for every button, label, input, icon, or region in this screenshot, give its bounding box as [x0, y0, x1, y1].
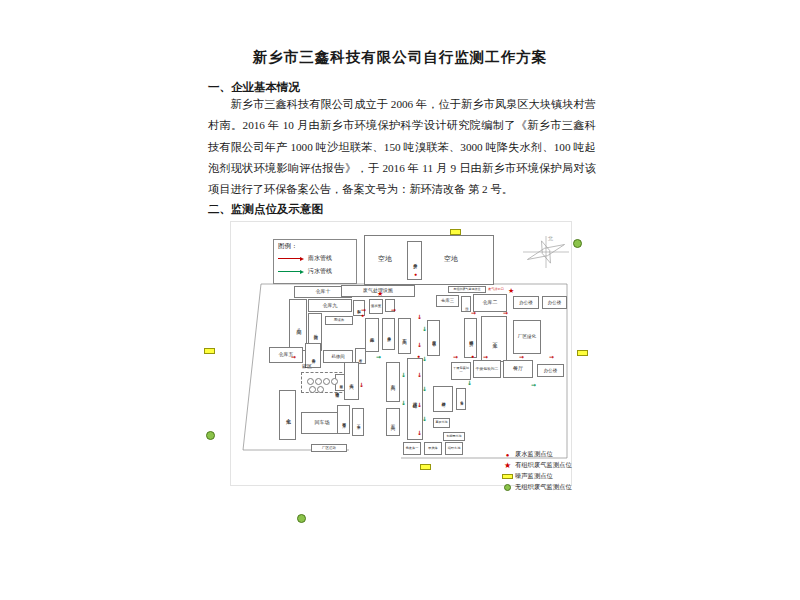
fugitive-gas-point-icon: [504, 484, 511, 491]
map-building: 空地: [435, 252, 467, 266]
section1-paragraph: 新乡市三鑫科技有限公司成立于 2006 年，位于新乡市凤泉区大块镇块村营村南。2…: [208, 94, 596, 200]
map-building: 办公楼: [542, 296, 567, 309]
map-building: 周转库: [325, 316, 353, 325]
map-building: 仓库九: [308, 299, 352, 312]
map-building: 值班室: [369, 299, 383, 314]
rainwater-pipe-arrow: ↓: [417, 430, 422, 436]
map-building: 仓库十一: [352, 408, 364, 436]
map-building: 罐区: [297, 362, 317, 371]
monitoring-legend-item-fugitive-gas: 无组织废气监测点位: [500, 482, 630, 493]
noise-monitoring-point: [420, 464, 431, 470]
monitoring-legend-item-noise: 噪声监测点位: [500, 471, 630, 482]
wastewater-point-icon: ●: [506, 452, 510, 458]
legend-item-sewage: 污水管线: [278, 265, 352, 278]
map-building: 备件库: [456, 388, 466, 410]
monitoring-legend-item-wastewater: ● 废水监测点位: [500, 449, 630, 460]
sewage-pipe-arrow: ↓: [422, 356, 427, 362]
rainwater-pipe-arrow: ↓: [417, 314, 422, 320]
map-building: 危废库二: [382, 318, 395, 350]
map-building: 干燥包装间一: [451, 362, 471, 380]
map-building: 仓库四: [365, 318, 379, 352]
storage-tank-icon: [315, 378, 322, 385]
map-building: 有组织废气监测点位: [448, 286, 486, 293]
sewage-pipe-arrow: →: [531, 382, 536, 388]
fugitive-gas-monitoring-point: [206, 431, 215, 440]
rainwater-pipe-arrow: →: [471, 310, 476, 316]
wastewater-point-icon: ●: [361, 313, 364, 318]
map-building: 五车间: [398, 318, 411, 354]
organized-gas-point-icon: ★: [377, 290, 383, 297]
sewage-pipe-arrow: →: [376, 354, 381, 360]
organized-gas-point-icon: ★: [508, 287, 514, 294]
fugitive-gas-monitoring-point: [573, 239, 582, 248]
sewage-pipe-arrow: ↓: [401, 400, 406, 406]
map-building: 办公楼: [537, 364, 564, 377]
legend-item-rainwater: 雨水管线: [278, 252, 352, 265]
rainwater-pipe-arrow: →: [519, 354, 524, 360]
map-building: 仓库五: [269, 347, 303, 363]
fugitive-gas-monitoring-point: [297, 514, 306, 523]
storage-tank-icon: [307, 378, 314, 385]
map-building: 危废库一: [403, 442, 421, 455]
rainwater-pipe-arrow: →: [391, 307, 396, 313]
rainwater-pipe-arrow: →: [549, 354, 554, 360]
map-building: 仓库七: [279, 390, 296, 440]
map-building: 初期雨水池: [443, 432, 465, 441]
rainwater-pipe-arrow: ↓: [417, 372, 422, 378]
rainwater-pipe-arrow: →: [503, 310, 508, 316]
sewage-pipe-arrow: ↓: [467, 380, 472, 386]
noise-point-icon: [502, 474, 513, 479]
pipeline-legend: 图例： 雨水管线 污水管线: [273, 239, 357, 284]
rainwater-pipe-arrow: →: [453, 354, 458, 360]
organized-gas-point-icon: ★: [504, 462, 511, 470]
storage-tank-icon: [331, 378, 338, 385]
noise-monitoring-point: [450, 229, 461, 235]
gas-outlet-note: 废气排放口: [488, 287, 504, 291]
fugitive-gas-point-label: 无组织废气监测点位: [515, 483, 572, 492]
noise-point-label: 噪声监测点位: [515, 472, 553, 481]
section2-heading: 二、监测点位及示意图: [208, 202, 323, 217]
monitoring-legend-item-organized-gas: ★ 有组织废气监测点位: [500, 460, 630, 471]
map-building: 甲类库: [424, 442, 442, 455]
map-building: 辅助用房: [464, 318, 477, 358]
noise-monitoring-point: [204, 348, 215, 354]
rainwater-pipe-arrow: ↓: [417, 402, 422, 408]
sewage-pipe-arrow: ↓: [401, 372, 406, 378]
rainwater-pipe-arrow: →: [483, 354, 488, 360]
pipeline-legend-title: 图例：: [278, 242, 352, 251]
map-building: 仓库二: [473, 294, 507, 312]
compass-north-icon: 北: [523, 234, 569, 268]
map-building: 空地: [369, 252, 401, 266]
wastewater-point-icon: ●: [417, 354, 420, 359]
wastewater-point-icon: ●: [414, 272, 417, 277]
rainwater-pipe-arrow: ↓: [417, 342, 422, 348]
map-building: 干燥包装间二: [473, 360, 501, 378]
storage-tank-icon: [317, 386, 324, 393]
storage-tank-icon: [309, 386, 316, 393]
wastewater-point-icon: ●: [471, 354, 474, 359]
map-building: 事故水池: [433, 418, 450, 428]
section1-heading: 一、企业基本情况: [208, 80, 300, 95]
map-building: 空压设备区: [427, 320, 440, 356]
factory-map: 图例： 雨水管线 污水管线 北 废气排放口 空地看护房空地仓库十仓库九八车: [230, 221, 572, 486]
sewage-pipe-arrow: ↓: [422, 416, 427, 422]
map-building: 仓库六: [344, 362, 359, 400]
map-building: 门卫: [461, 296, 471, 312]
page: 新乡市三鑫科技有限公司自行监测工作方案 一、企业基本情况 新乡市三鑫科技有限公司…: [0, 0, 800, 600]
map-building: 餐厅: [503, 360, 533, 378]
rainwater-pipeline-icon: [278, 257, 304, 261]
map-building: 六车间: [386, 362, 400, 402]
monitoring-legend: ● 废水监测点位 ★ 有组织废气监测点位 噪声监测点位 无组织废气监测点位: [500, 449, 630, 493]
map-building: 循环水池: [445, 442, 463, 455]
sewage-pipe-arrow: ↓: [422, 386, 427, 392]
sewage-pipe-arrow: ↓: [422, 326, 427, 332]
organized-gas-point-label: 有组织废气监测点位: [515, 461, 572, 470]
map-building: 厂区道路: [311, 444, 347, 452]
compass-north-label: 北: [548, 235, 553, 242]
map-building: 三车间: [386, 408, 400, 436]
map-building: 办公楼: [513, 296, 539, 309]
rainwater-pipeline-label: 雨水管线: [308, 254, 332, 263]
sewage-pipeline-label: 污水管线: [308, 267, 332, 276]
map-building: 仓库三: [436, 295, 459, 307]
map-building: 厂区绿化: [513, 320, 541, 354]
wastewater-point-label: 废水监测点位: [515, 450, 553, 459]
rainwater-pipe-arrow: →: [291, 354, 296, 360]
map-building: 闲置仓库: [337, 405, 350, 434]
storage-tank-icon: [323, 378, 330, 385]
noise-monitoring-point: [577, 350, 588, 356]
map-building: 污水处理站: [433, 386, 453, 412]
rainwater-pipe-arrow: ↓: [359, 382, 364, 388]
document-title: 新乡市三鑫科技有限公司自行监测工作方案: [0, 48, 800, 67]
sewage-pipeline-icon: [278, 270, 304, 274]
